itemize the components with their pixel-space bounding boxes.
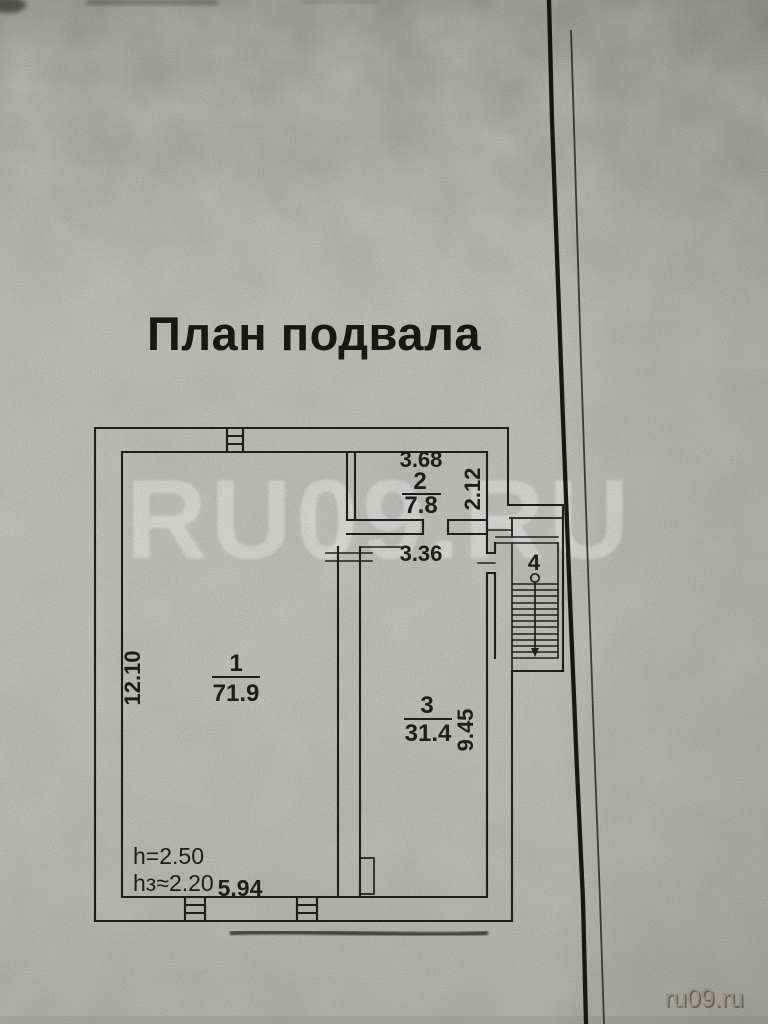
basement-plan-svg: RU09.RU План подвала 3.68 2 [0,0,768,1024]
scanned-floorplan-photo: RU09.RU План подвала 3.68 2 [0,0,768,1024]
blotch-top-band [0,0,768,330]
